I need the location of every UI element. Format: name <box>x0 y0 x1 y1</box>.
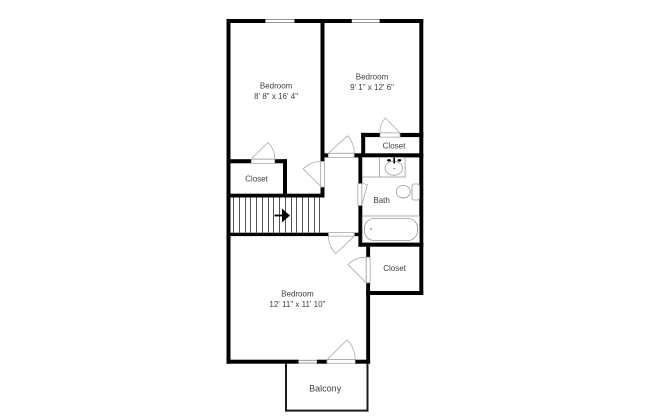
svg-text:Bedroom: Bedroom <box>260 82 293 91</box>
svg-text:Closet: Closet <box>245 174 268 183</box>
svg-text:12' 11" x 11' 10": 12' 11" x 11' 10" <box>269 300 325 309</box>
svg-text:Bedroom: Bedroom <box>356 73 389 82</box>
svg-text:9' 1" x 12' 6": 9' 1" x 12' 6" <box>350 83 394 92</box>
svg-text:Closet: Closet <box>383 264 406 273</box>
svg-text:Closet: Closet <box>383 141 406 150</box>
svg-text:Bedroom: Bedroom <box>281 290 314 299</box>
svg-text:Bath: Bath <box>373 196 389 205</box>
svg-text:Balcony: Balcony <box>309 383 342 393</box>
svg-text:8' 8" x 16' 4": 8' 8" x 16' 4" <box>254 92 298 101</box>
